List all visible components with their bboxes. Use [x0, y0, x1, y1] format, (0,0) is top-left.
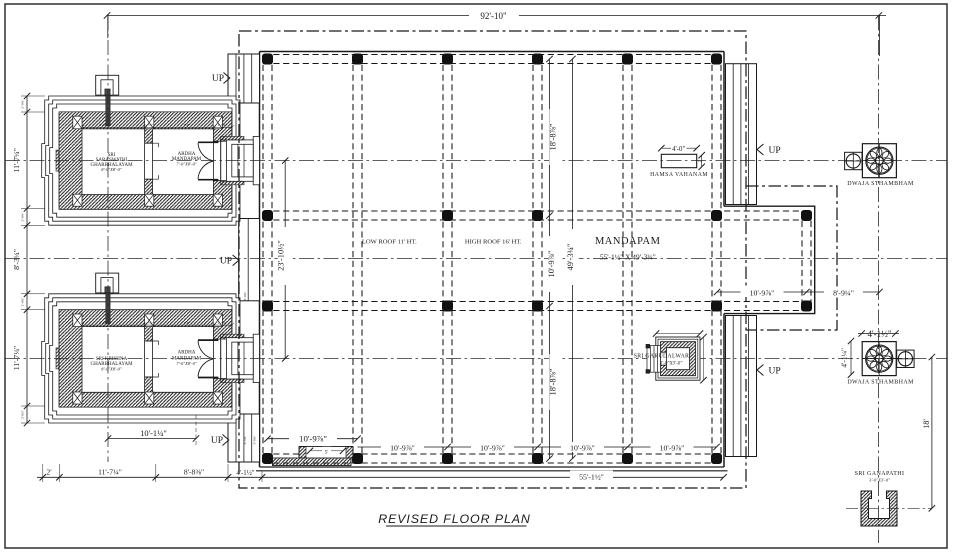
svg-text:49'-3¾": 49'-3¾" — [565, 244, 575, 271]
svg-text:1'-7⅞": 1'-7⅞" — [217, 123, 227, 127]
svg-text:ARDHA: ARDHA — [178, 350, 196, 355]
svg-text:18'-8⅞": 18'-8⅞" — [547, 369, 557, 396]
svg-text:7'-0": 7'-0" — [184, 321, 191, 325]
svg-text:8'-8⅜": 8'-8⅜" — [184, 468, 204, 477]
svg-text:3'-0"X3'-0": 3'-0"X3'-0" — [869, 478, 890, 483]
svg-text:11'-7¼": 11'-7¼" — [98, 468, 122, 477]
svg-text:3'-5⅞": 3'-5⅞" — [243, 435, 247, 445]
svg-text:7'-0"X8'-0": 7'-0"X8'-0" — [176, 361, 197, 366]
svg-text:REVISED FLOOR PLAN: REVISED FLOOR PLAN — [378, 512, 531, 526]
svg-text:5': 5' — [325, 449, 329, 455]
svg-text:10'-1¼": 10'-1¼" — [140, 429, 167, 438]
svg-text:4'-1½": 4'-1½" — [236, 470, 254, 477]
svg-text:5'-0⅞": 5'-0⅞" — [253, 435, 257, 445]
svg-text:10'-9⅞": 10'-9⅞" — [480, 444, 505, 453]
svg-text:1'-7⅞": 1'-7⅞" — [217, 321, 227, 325]
svg-text:8'-0"X8'-0": 8'-0"X8'-0" — [101, 167, 122, 172]
svg-text:18': 18' — [922, 419, 931, 429]
svg-text:10'-9⅞": 10'-9⅞" — [570, 444, 595, 453]
svg-text:10'-9⅞": 10'-9⅞" — [660, 444, 685, 453]
svg-text:10'-9⅞": 10'-9⅞" — [546, 251, 556, 278]
svg-text:8'-9¼": 8'-9¼" — [833, 288, 854, 297]
svg-text:55'-1½" X 49'-3¾": 55'-1½" X 49'-3¾" — [600, 252, 656, 261]
svg-text:UP: UP — [220, 256, 232, 266]
svg-text:UP: UP — [769, 146, 781, 156]
svg-text:LOW ROOF 11' HT.: LOW ROOF 11' HT. — [362, 238, 417, 245]
svg-text:8'-0"X8'-0": 8'-0"X8'-0" — [101, 366, 122, 371]
svg-text:4'-0": 4'-0" — [672, 146, 685, 153]
svg-text:4'-1½": 4'-1½" — [867, 329, 891, 339]
svg-text:MANDAPAM: MANDAPAM — [595, 236, 661, 247]
svg-text:10'-9⅞": 10'-9⅞" — [299, 433, 327, 443]
svg-text:8'-3¼": 8'-3¼" — [12, 249, 21, 270]
svg-text:11'-7¼": 11'-7¼" — [12, 346, 21, 370]
svg-text:HAMSA VAHANAM: HAMSA VAHANAM — [650, 172, 708, 178]
svg-text:7'-0"X8'-0": 7'-0"X8'-0" — [176, 161, 197, 166]
svg-text:ARDHA: ARDHA — [178, 152, 196, 157]
svg-text:DWAJA STHAMBHAM: DWAJA STHAMBHAM — [847, 181, 914, 187]
svg-text:92'-10": 92'-10" — [480, 11, 507, 21]
svg-text:2'-0⅞": 2'-0⅞" — [21, 297, 25, 307]
svg-text:2'-0⅞": 2'-0⅞" — [21, 409, 25, 419]
svg-text:4'-1¼": 4'-1¼" — [840, 348, 849, 368]
svg-text:10'-9⅞": 10'-9⅞" — [390, 444, 415, 453]
svg-text:UP: UP — [211, 436, 223, 446]
svg-text:SRI GARUDALWAR: SRI GARUDALWAR — [634, 354, 689, 360]
svg-text:2': 2' — [46, 468, 52, 477]
svg-text:1'-7⅞": 1'-7⅞" — [144, 123, 154, 127]
svg-text:55'-1½": 55'-1½" — [579, 473, 604, 482]
svg-text:18'-8⅞": 18'-8⅞" — [547, 124, 557, 151]
svg-text:11'-7¼": 11'-7¼" — [12, 148, 21, 172]
svg-text:DWAJA STHAMBHAM: DWAJA STHAMBHAM — [847, 379, 914, 385]
svg-text:UP: UP — [212, 74, 224, 84]
svg-text:3'-0"X3'-0": 3'-0"X3'-0" — [660, 361, 684, 366]
svg-text:2'-0⅞": 2'-0⅞" — [21, 99, 25, 109]
svg-text:2'-0⅞": 2'-0⅞" — [21, 212, 25, 222]
svg-text:10'-9⅞": 10'-9⅞" — [750, 288, 775, 297]
svg-text:UP: UP — [769, 367, 781, 377]
svg-text:1'-7⅞": 1'-7⅞" — [144, 321, 154, 325]
svg-text:5'-0⅞": 5'-0⅞" — [243, 291, 247, 301]
svg-text:HIGH ROOF 16' HT.: HIGH ROOF 16' HT. — [465, 238, 522, 245]
svg-text:7'-0": 7'-0" — [184, 123, 191, 127]
svg-text:2': 2' — [699, 159, 703, 162]
svg-text:23'-10½": 23'-10½" — [277, 240, 286, 270]
svg-text:SRI GANAPATHI: SRI GANAPATHI — [855, 471, 905, 477]
